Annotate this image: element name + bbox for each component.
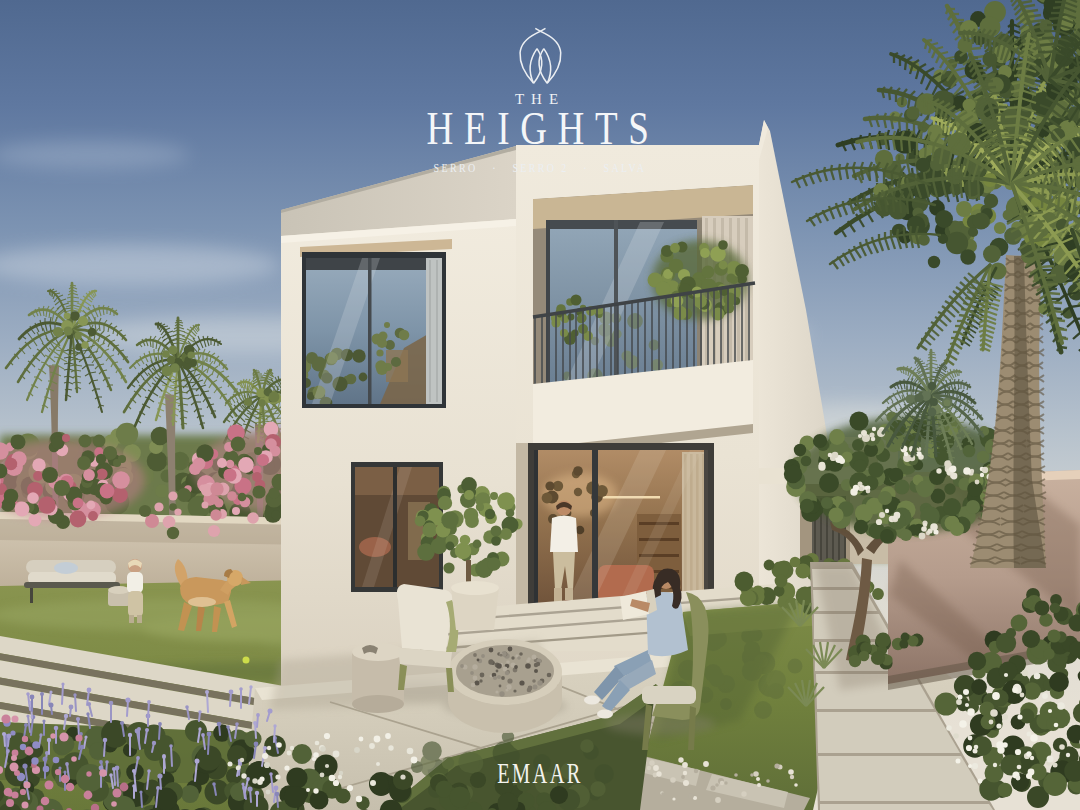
svg-text:SERRO · SERRO 2 · SALV: SERRO · SERRO 2 · SALVA (434, 159, 647, 175)
svg-text:HEIGHTS: HEIGHTS (427, 103, 660, 153)
svg-text:EMAAR: EMAAR (497, 756, 583, 790)
